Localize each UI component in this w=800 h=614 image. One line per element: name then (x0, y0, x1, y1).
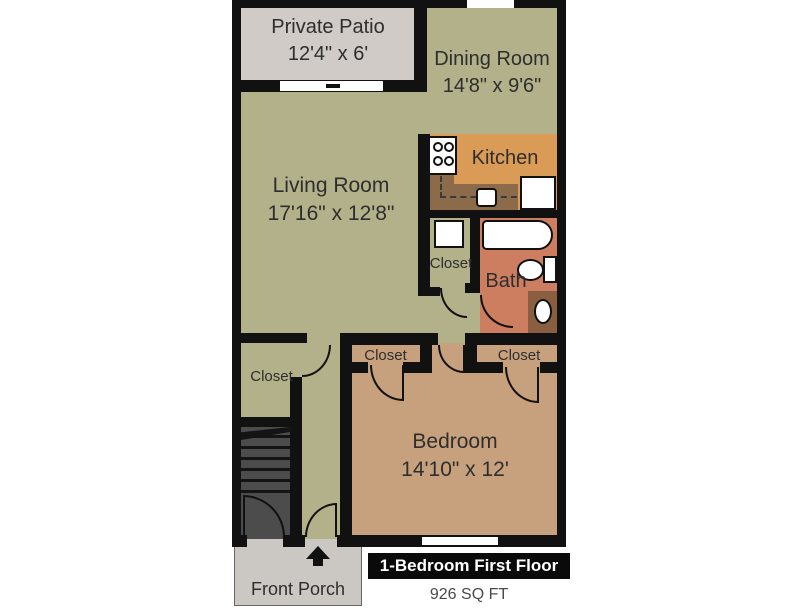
bedroom-window (422, 537, 498, 545)
bathtub-icon (482, 220, 553, 250)
bath-label: Bath (480, 268, 532, 295)
title-badge: 1-Bedroom First Floor (368, 553, 570, 579)
wall-patio-dining-divider (414, 0, 427, 92)
counter-dash-vertical (440, 176, 442, 198)
bedroom-closet-right-door-leaf (537, 367, 539, 403)
wall-closet-bath-jamb (465, 283, 480, 293)
bedroom-closet-right-label: Closet (490, 346, 548, 366)
stove-burner-icon (444, 142, 454, 152)
hall-closet-label: Closet (427, 254, 475, 274)
bedroom-closet-left-door-leaf (402, 365, 404, 401)
room-dims: 12'4" x 6' (288, 43, 368, 65)
floor-plan: Private Patio 12'4" x 6' Dining Room 14'… (0, 0, 800, 614)
patio-sliding-door-handle (326, 84, 340, 88)
private-patio-label: Private Patio 12'4" x 6' (242, 14, 414, 68)
wall-closet-bath-divider (470, 218, 480, 288)
kitchen-sink-icon (476, 188, 497, 207)
front-porch-label: Front Porch (234, 577, 362, 601)
bedroom-label: Bedroom 14'10" x 12' (355, 428, 555, 485)
room-name: Dining Room (434, 48, 550, 70)
vanity-sink-icon (534, 299, 552, 324)
living-room-label: Living Room 17'16" x 12'8" (241, 172, 421, 229)
water-heater-icon (434, 220, 464, 248)
dining-window (467, 0, 514, 8)
stove-burner-icon (444, 156, 454, 166)
refrigerator-icon (520, 176, 556, 210)
stove-icon (428, 136, 457, 175)
wall-bottom-2 (283, 535, 305, 547)
entry-arrow-stem (313, 558, 323, 566)
bedroom-closet-left-label: Closet (358, 346, 413, 366)
room-dims: 17'16" x 12'8" (268, 202, 395, 225)
stairs-door-leaf (243, 495, 245, 537)
room-dims: 14'8" x 9'6" (443, 75, 542, 97)
wall-bedroom-left (340, 333, 352, 547)
stove-burner-icon (433, 142, 443, 152)
wall-stairs-top (241, 417, 302, 427)
toilet-tank-icon (543, 256, 557, 283)
room-name: Living Room (273, 174, 390, 197)
wall-bedroom-closet-divider-right (465, 333, 477, 373)
wall-bedroom-closet-divider-left (420, 333, 432, 373)
wall-mid-left (232, 333, 307, 343)
room-name: Bedroom (412, 430, 497, 453)
wall-closet-living-jamb (418, 287, 440, 296)
living-closet-label: Closet (241, 367, 302, 387)
room-dims: 14'10" x 12' (401, 458, 509, 481)
wall-kitchen-bottom (418, 210, 557, 218)
front-door-leaf (335, 503, 337, 537)
kitchen-label: Kitchen (460, 145, 550, 172)
sqft-label: 926 SQ FT (368, 586, 570, 604)
bedroom-entry-door-leaf (463, 345, 465, 373)
wall-top (232, 0, 566, 8)
wall-mid-right (466, 333, 566, 345)
stove-burner-icon (433, 156, 443, 166)
wall-right-outer (557, 0, 566, 547)
wall-hall-stairs (290, 377, 302, 539)
room-name: Private Patio (271, 16, 384, 38)
dining-room-label: Dining Room 14'8" x 9'6" (427, 46, 557, 100)
